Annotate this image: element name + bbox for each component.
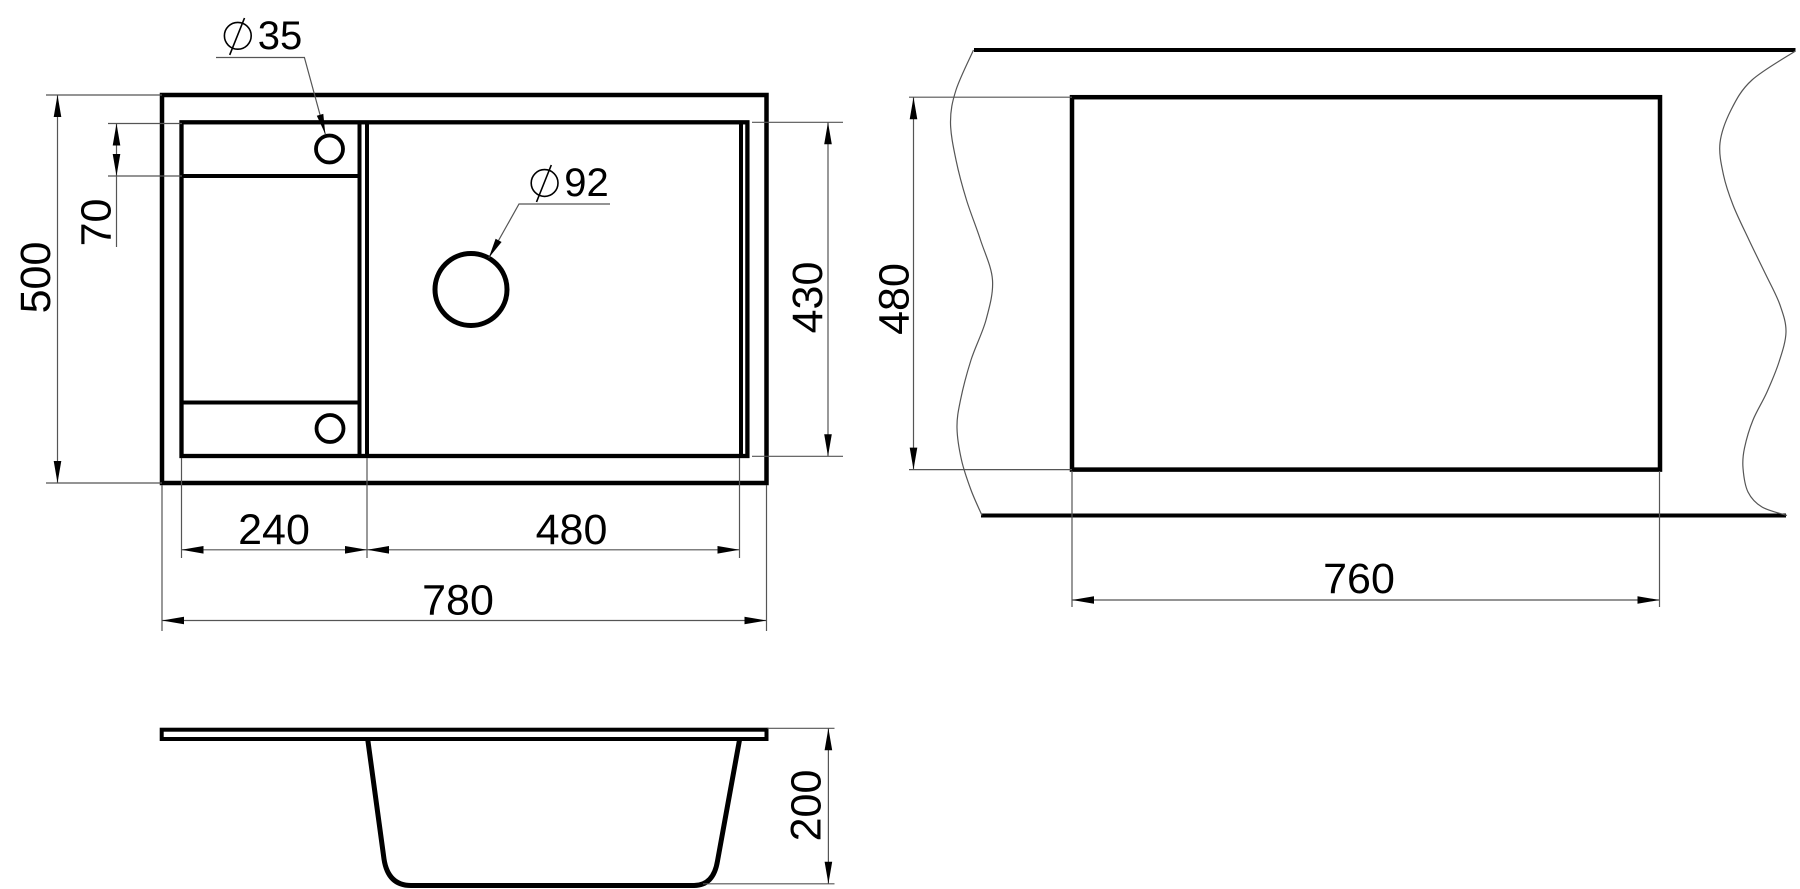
- svg-text:92: 92: [564, 161, 609, 205]
- svg-text:480: 480: [536, 506, 608, 554]
- svg-text:760: 760: [1323, 555, 1395, 603]
- svg-text:430: 430: [784, 262, 832, 334]
- svg-text:35: 35: [258, 14, 303, 58]
- svg-text:780: 780: [422, 577, 494, 625]
- svg-text:480: 480: [871, 263, 919, 335]
- svg-text:240: 240: [238, 506, 310, 554]
- svg-text:200: 200: [783, 770, 831, 842]
- svg-text:500: 500: [12, 242, 60, 314]
- svg-text:70: 70: [73, 199, 121, 247]
